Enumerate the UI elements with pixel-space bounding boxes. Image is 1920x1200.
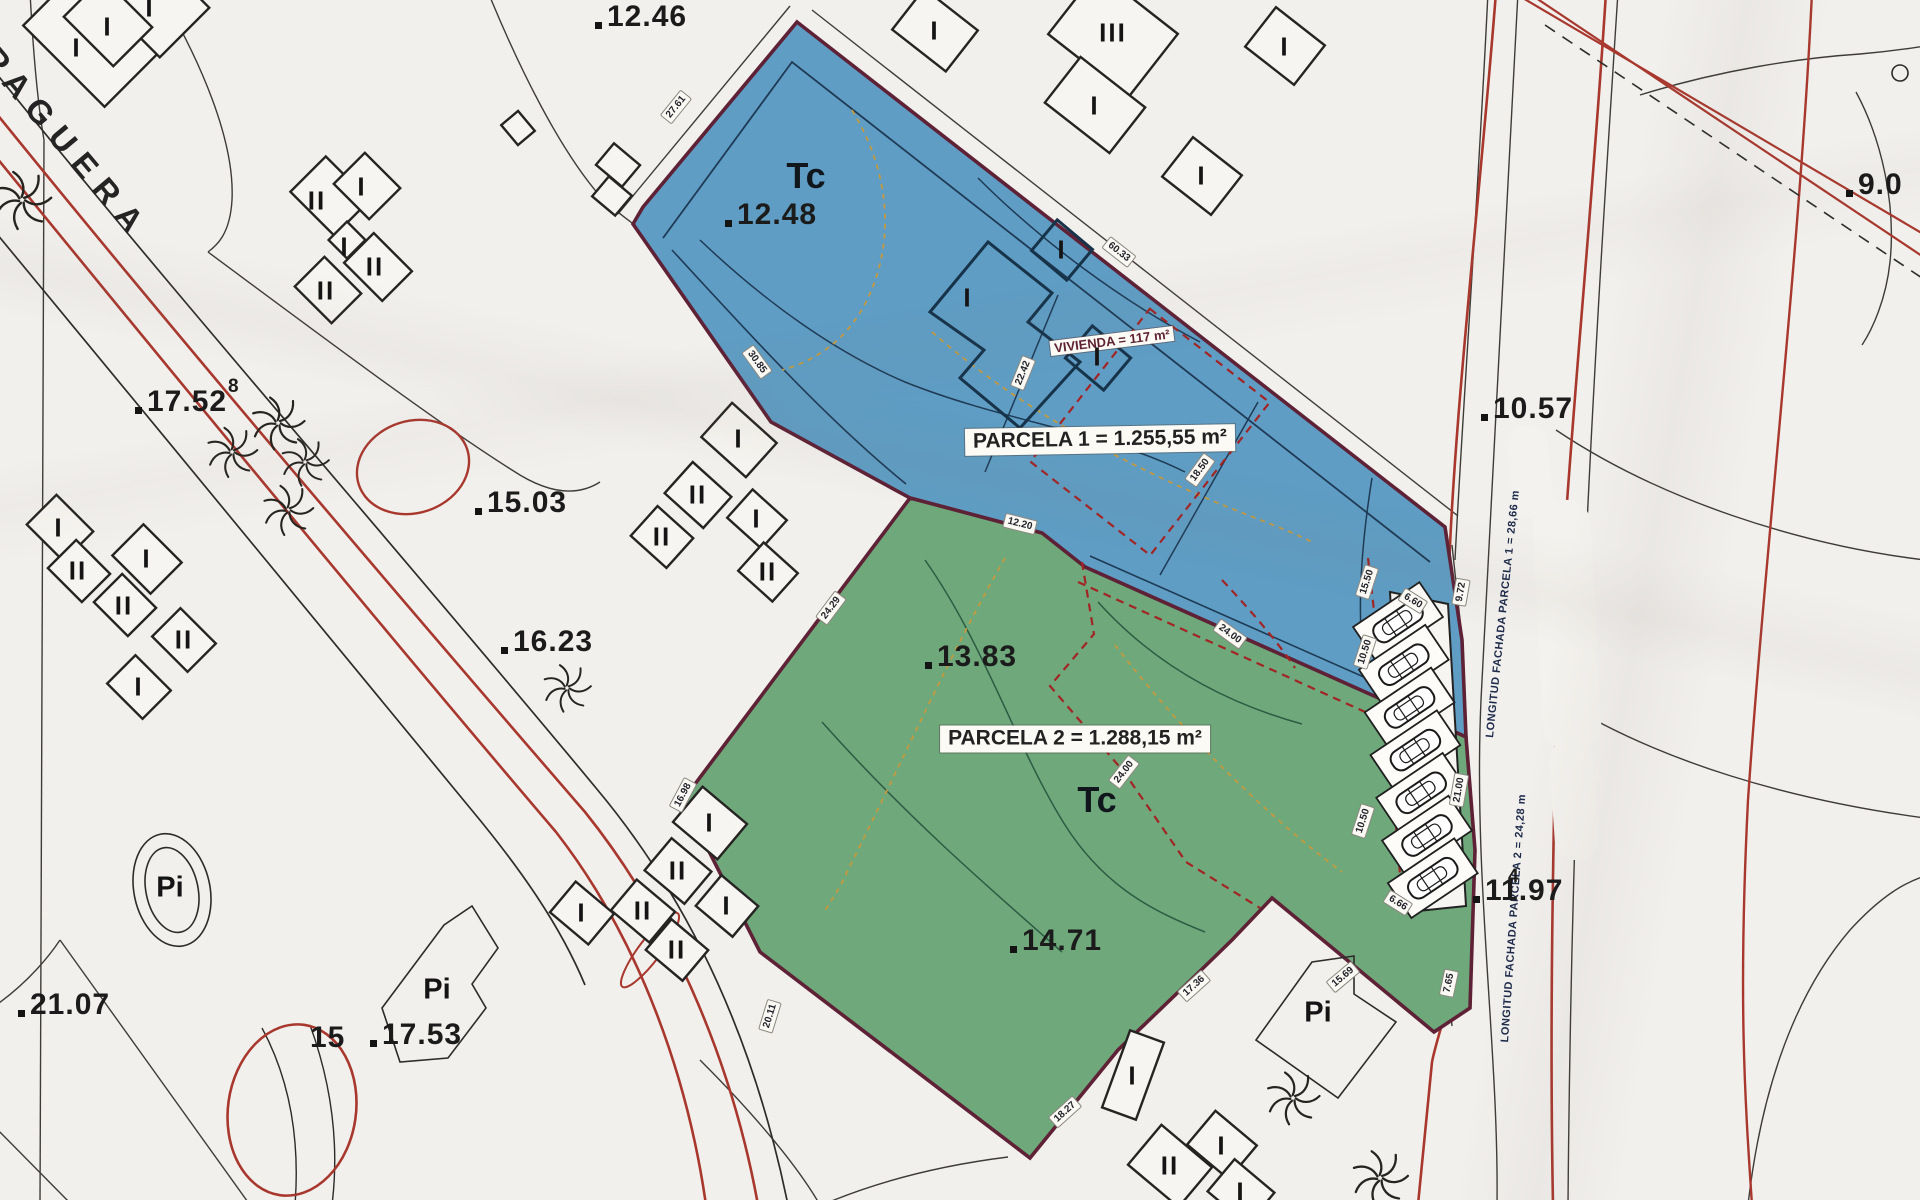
floor-count-label: II (669, 856, 687, 887)
spot-elevation-label: 17.53 (382, 1018, 462, 1052)
cadastral-plan-scan: PAGUERA Tc Tc PARCELA 1 = 1.255,55 m² PA… (0, 0, 1920, 1200)
floor-count-label: I (357, 172, 366, 203)
parcel-1-area-label: PARCELA 1 = 1.255,55 m² (965, 424, 1235, 456)
floor-count-label: II (653, 522, 671, 553)
spot-elevation-label: 13.83 (937, 640, 1017, 674)
floor-count-label: I (1236, 1177, 1245, 1200)
floor-count-label: II (366, 252, 384, 283)
edge-measurement-label: 18.50 (1184, 452, 1216, 488)
street-name-label: PAGUERA (0, 40, 158, 248)
floor-count-label: I (752, 504, 761, 535)
edge-measurement-label: 24.00 (1108, 754, 1140, 789)
floor-count-label: I (930, 16, 939, 47)
spot-elevation-label: 12.48 (737, 198, 817, 232)
floor-count-label: I (1057, 235, 1066, 266)
floor-count-label: II (759, 557, 777, 588)
spot-elevation-label: 12.46 (607, 0, 687, 34)
edge-measurement-label: 10.50 (1353, 634, 1377, 670)
edge-measurement-label: 22.42 (1010, 355, 1036, 391)
floor-count-label: I (145, 0, 154, 24)
floor-count-label: I (142, 544, 151, 575)
floor-count-label: I (1128, 1061, 1137, 1092)
spot-elevation-superscript: 8 (228, 376, 239, 398)
floor-count-label: I (134, 672, 143, 703)
floor-count-label: I (577, 898, 586, 929)
spot-elevation-label: 21.07 (30, 988, 110, 1022)
floor-count-label: I (963, 283, 972, 314)
edge-measurement-label: 27.61 (660, 89, 692, 124)
floor-count-label: I (734, 424, 743, 455)
floor-count-label: II (634, 896, 652, 927)
floor-count-label: II (69, 556, 87, 587)
floor-count-label: I (722, 891, 731, 922)
pine-label: Pi (156, 872, 183, 905)
label-layer: PAGUERA Tc Tc PARCELA 1 = 1.255,55 m² PA… (0, 0, 1920, 1200)
floor-count-label: II (317, 276, 335, 307)
spot-elevation-label: 14.71 (1022, 924, 1102, 958)
spot-elevation-label: 15.03 (487, 486, 567, 520)
edge-measurement-label: 24.29 (815, 590, 847, 625)
edge-measurement-label: 10.50 (1351, 803, 1375, 839)
spot-elevation-label: 10.57 (1493, 392, 1573, 426)
floor-count-label: I (1090, 91, 1099, 122)
spot-elevation-label: 15 (310, 1021, 345, 1055)
parcel-1-frontage-label: LONGITUD FACHADA PARCELA 1 = 28,66 m (1484, 489, 1522, 738)
edge-measurement-label: 17.36 (1177, 969, 1212, 1002)
edge-measurement-label: 12.20 (1002, 513, 1038, 536)
spot-elevation-superscript: 4 (1508, 866, 1519, 888)
floor-count-label: I (72, 33, 81, 64)
edge-measurement-label: 60.33 (1101, 236, 1136, 268)
floor-count-label: I (1093, 342, 1102, 373)
spot-elevation-label: 11.97 (1485, 874, 1563, 908)
floor-count-label: I (103, 12, 112, 43)
spot-elevation-label: 17.52 (147, 385, 227, 419)
vivienda-area-label: VIVIENDA = 117 m² (1049, 326, 1174, 356)
edge-measurement-label: 15.69 (1326, 961, 1361, 994)
parcel-2-frontage-label: LONGITUD FACHADA PARCELA 2 = 24,28 m (1499, 794, 1528, 1043)
floor-count-label: II (1161, 1151, 1179, 1182)
edge-measurement-label: 6.60 (1397, 587, 1428, 614)
floor-count-label: I (1280, 32, 1289, 63)
floor-count-label: II (689, 480, 707, 511)
edge-measurement-label: 21.00 (1449, 772, 1470, 807)
spot-elevation-label: 9.0 (1858, 168, 1903, 202)
parcel-2-landuse-label: Tc (1077, 779, 1116, 821)
edge-measurement-label: 9.72 (1451, 577, 1471, 607)
pine-label: Pi (423, 974, 450, 1007)
floor-count-label: II (115, 591, 133, 622)
floor-count-label: I (705, 808, 714, 839)
floor-count-label: III (1099, 18, 1127, 49)
spot-elevation-label: 16.23 (513, 625, 593, 659)
floor-count-label: I (1217, 1131, 1226, 1162)
edge-measurement-label: 30.85 (741, 344, 773, 380)
floor-count-label: I (1197, 161, 1206, 192)
floor-count-label: II (668, 935, 686, 966)
edge-measurement-label: 15.50 (1355, 564, 1379, 600)
edge-measurement-label: 16.98 (669, 777, 698, 813)
floor-count-label: II (175, 625, 193, 656)
parcel-2-area-label: PARCELA 2 = 1.288,15 m² (940, 726, 1210, 753)
edge-measurement-label: 20.11 (758, 998, 782, 1033)
floor-count-label: II (308, 186, 326, 217)
edge-measurement-label: 18.27 (1048, 1095, 1083, 1128)
edge-measurement-label: 6.66 (1382, 889, 1413, 916)
edge-measurement-label: 7.65 (1439, 968, 1459, 998)
edge-measurement-label: 24.00 (1212, 618, 1248, 650)
parcel-1-landuse-label: Tc (786, 155, 825, 197)
floor-count-label: I (54, 513, 63, 544)
pine-label: Pi (1304, 997, 1331, 1030)
floor-count-label: I (340, 232, 349, 263)
